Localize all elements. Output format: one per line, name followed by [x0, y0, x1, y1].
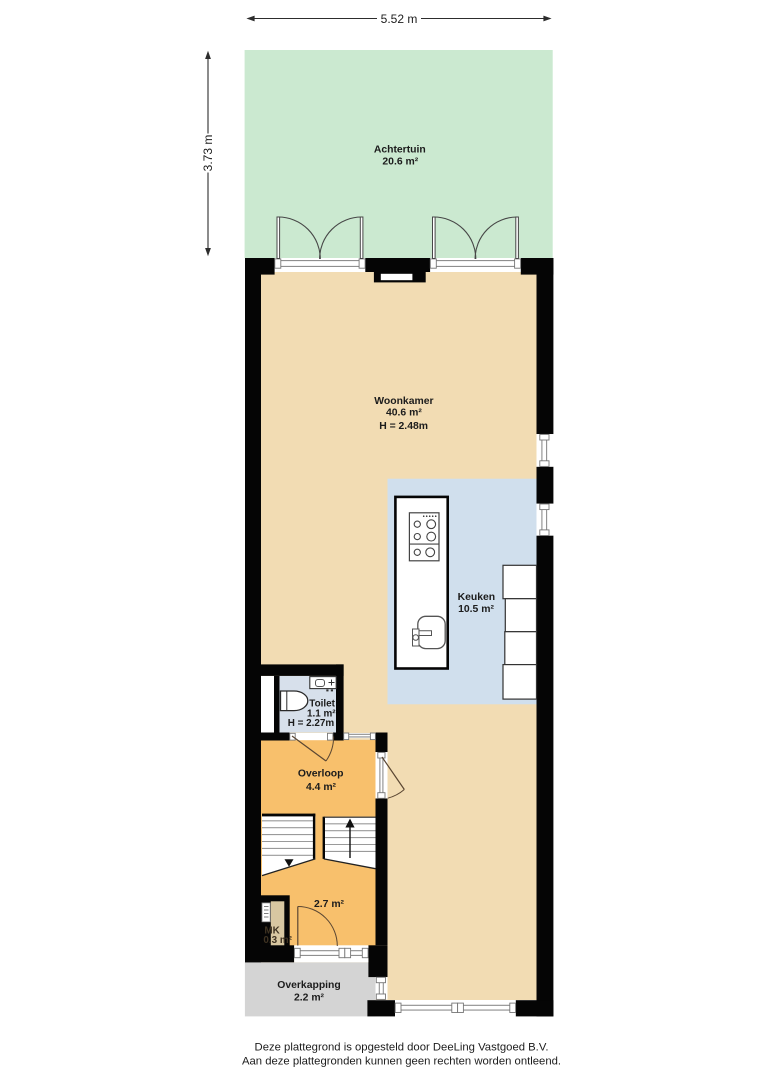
- svg-text:40.6 m²: 40.6 m²: [386, 407, 422, 418]
- svg-text:3.73 m: 3.73 m: [201, 135, 215, 172]
- svg-text:2.7 m²: 2.7 m²: [314, 899, 345, 910]
- svg-text:20.6 m²: 20.6 m²: [382, 156, 418, 167]
- svg-text:Woonkamer: Woonkamer: [374, 396, 433, 407]
- svg-text:4.4 m²: 4.4 m²: [306, 782, 337, 793]
- svg-text:H = 2.48m: H = 2.48m: [379, 421, 428, 432]
- svg-text:10.5 m²: 10.5 m²: [458, 604, 494, 615]
- svg-text:0.3 m²: 0.3 m²: [263, 935, 292, 946]
- svg-text:H = 2.27m: H = 2.27m: [288, 718, 335, 729]
- svg-text:Overloop: Overloop: [298, 769, 344, 780]
- svg-text:Aan deze plattegronden kunnen: Aan deze plattegronden kunnen geen recht…: [242, 1056, 561, 1068]
- svg-text:2.2 m²: 2.2 m²: [294, 992, 325, 1003]
- svg-text:5.52 m: 5.52 m: [381, 12, 418, 26]
- svg-text:Overkapping: Overkapping: [277, 980, 341, 991]
- svg-text:Achtertuin: Achtertuin: [374, 145, 426, 156]
- svg-text:Deze plattegrond is opgesteld: Deze plattegrond is opgesteld door DeeLi…: [255, 1042, 549, 1054]
- svg-text:Keuken: Keuken: [458, 592, 496, 603]
